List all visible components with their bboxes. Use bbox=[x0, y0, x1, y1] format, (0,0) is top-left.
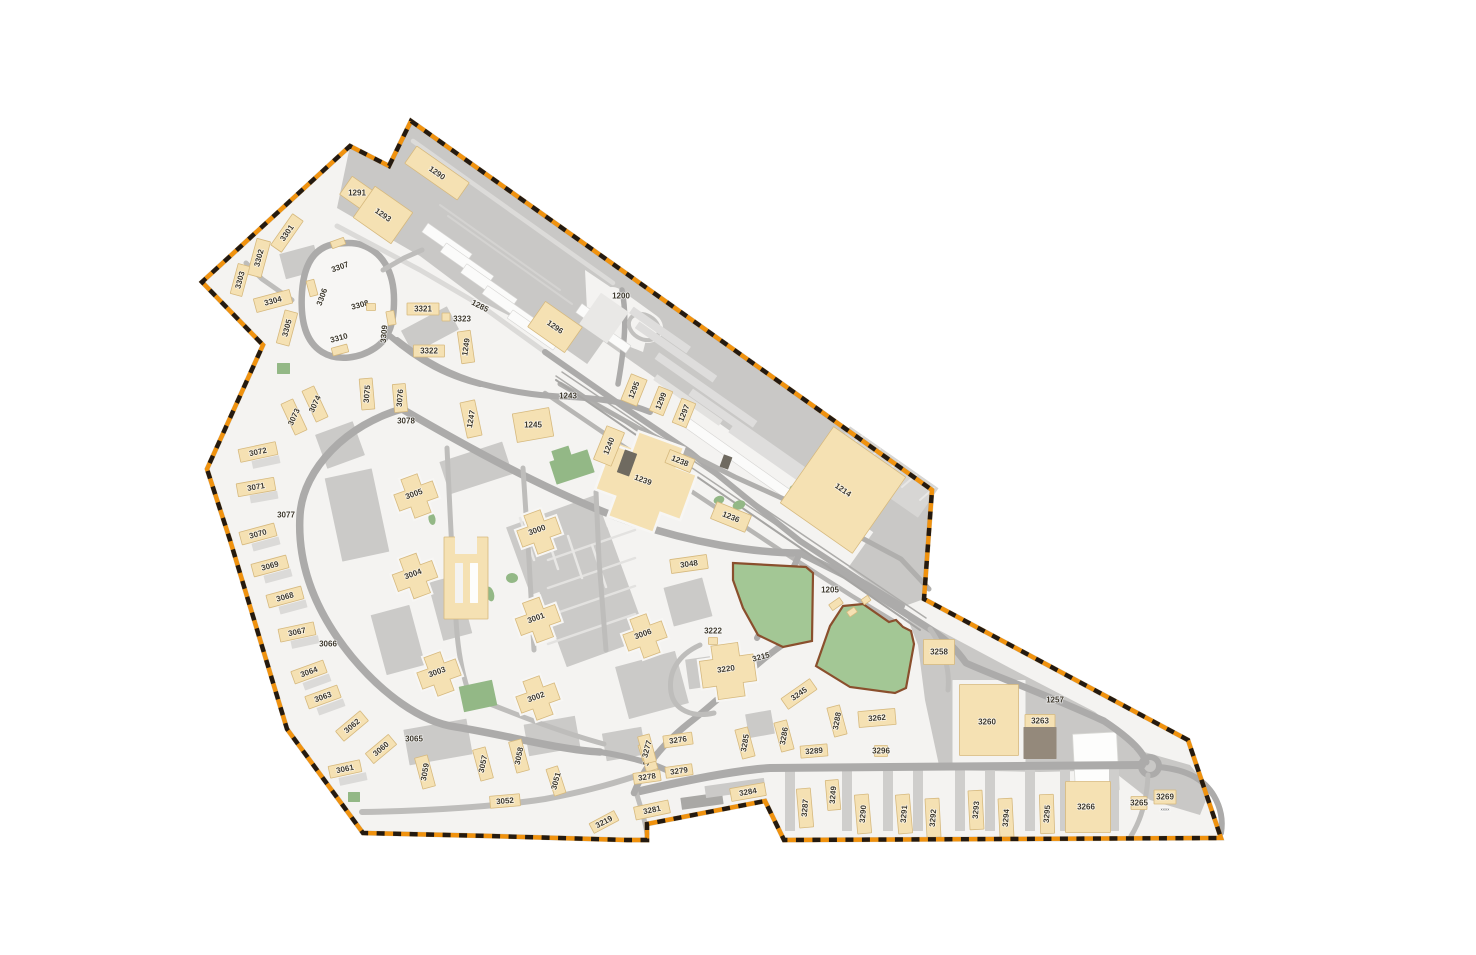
svg-text:3321: 3321 bbox=[414, 305, 432, 314]
svg-text:3322: 3322 bbox=[420, 347, 438, 356]
svg-text:3263: 3263 bbox=[1031, 717, 1049, 726]
svg-text:3293: 3293 bbox=[971, 800, 982, 819]
svg-text:1245: 1245 bbox=[524, 421, 542, 430]
svg-text:3077: 3077 bbox=[277, 511, 295, 520]
svg-text:3296: 3296 bbox=[872, 747, 890, 756]
svg-text:3287: 3287 bbox=[800, 798, 811, 817]
svg-text:1243: 1243 bbox=[559, 392, 577, 401]
svg-text:3266: 3266 bbox=[1077, 803, 1095, 812]
svg-text:3294: 3294 bbox=[1001, 808, 1012, 827]
svg-text:1257: 1257 bbox=[1046, 696, 1064, 705]
svg-text:3249: 3249 bbox=[828, 785, 839, 804]
svg-text:3269: 3269 bbox=[1156, 793, 1174, 802]
svg-text:3078: 3078 bbox=[397, 417, 415, 426]
svg-text:3065: 3065 bbox=[405, 735, 423, 744]
svg-text:1200: 1200 bbox=[612, 292, 630, 301]
svg-text:xxxx: xxxx bbox=[1161, 807, 1171, 812]
svg-text:3222: 3222 bbox=[704, 627, 722, 636]
svg-text:3292: 3292 bbox=[928, 808, 939, 827]
svg-text:3323: 3323 bbox=[453, 315, 471, 324]
svg-text:3290: 3290 bbox=[858, 804, 869, 823]
svg-text:3291: 3291 bbox=[899, 804, 910, 823]
svg-text:3052: 3052 bbox=[496, 796, 515, 807]
svg-text:3289: 3289 bbox=[805, 746, 824, 757]
svg-text:3260: 3260 bbox=[978, 718, 996, 727]
svg-text:3295: 3295 bbox=[1042, 804, 1053, 823]
svg-text:3309: 3309 bbox=[379, 324, 390, 343]
svg-text:3265: 3265 bbox=[1130, 799, 1148, 808]
svg-text:1205: 1205 bbox=[821, 586, 839, 595]
svg-text:3262: 3262 bbox=[868, 713, 887, 724]
svg-text:3258: 3258 bbox=[930, 648, 948, 657]
svg-text:1291: 1291 bbox=[348, 189, 366, 198]
svg-text:3066: 3066 bbox=[319, 640, 337, 649]
svg-text:3076: 3076 bbox=[395, 388, 406, 407]
svg-text:3075: 3075 bbox=[362, 384, 373, 403]
